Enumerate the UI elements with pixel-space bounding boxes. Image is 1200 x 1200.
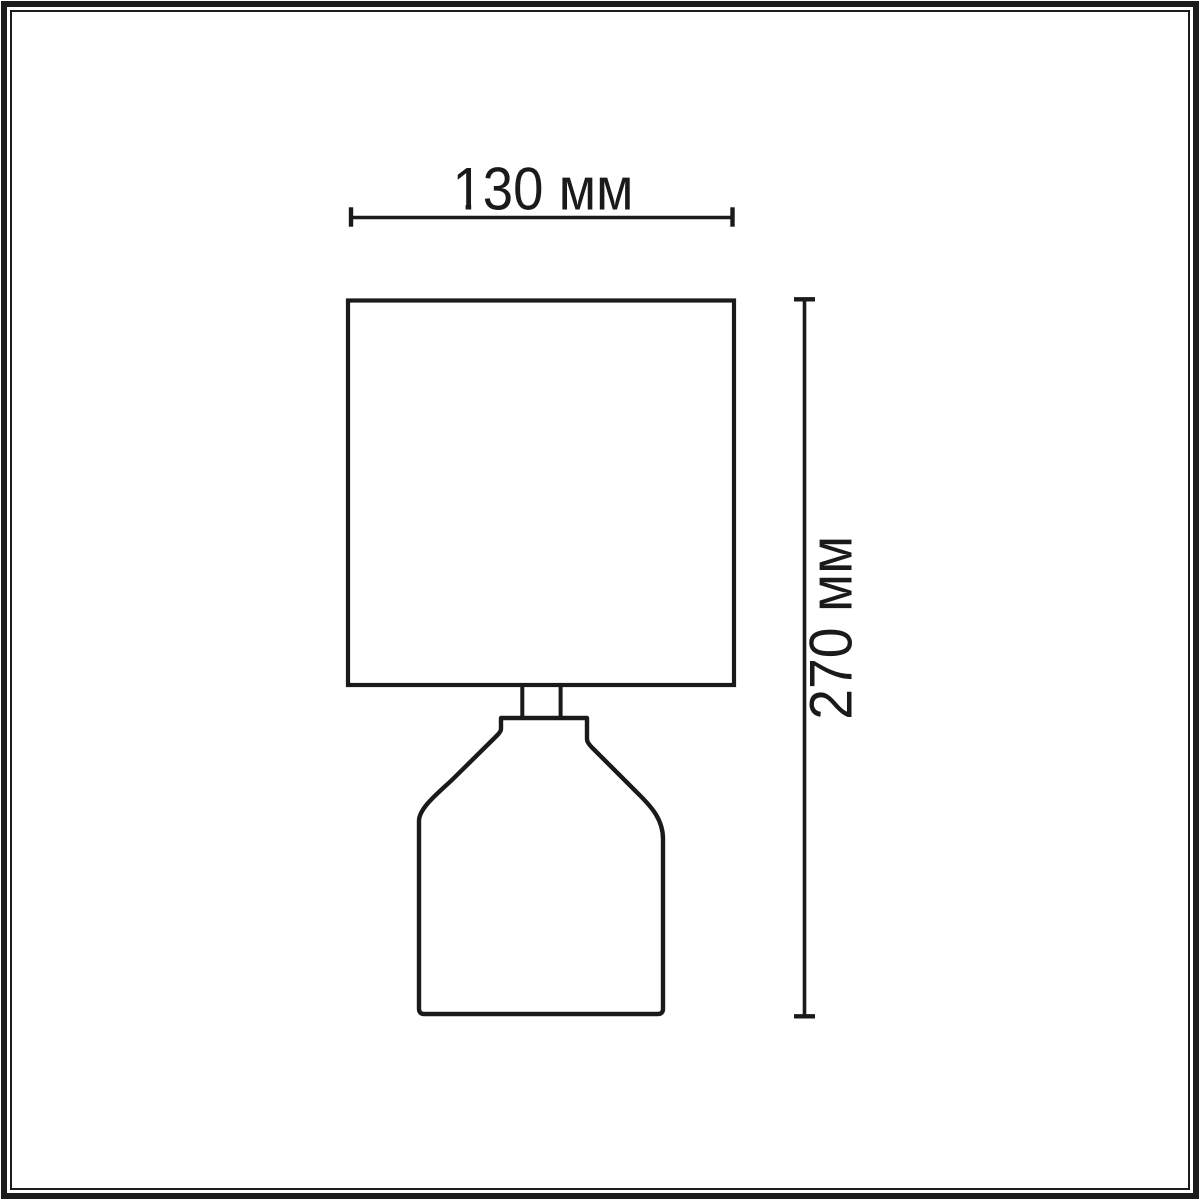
- svg-text:270 мм: 270 мм: [798, 536, 865, 720]
- svg-text:130 мм: 130 мм: [453, 156, 634, 223]
